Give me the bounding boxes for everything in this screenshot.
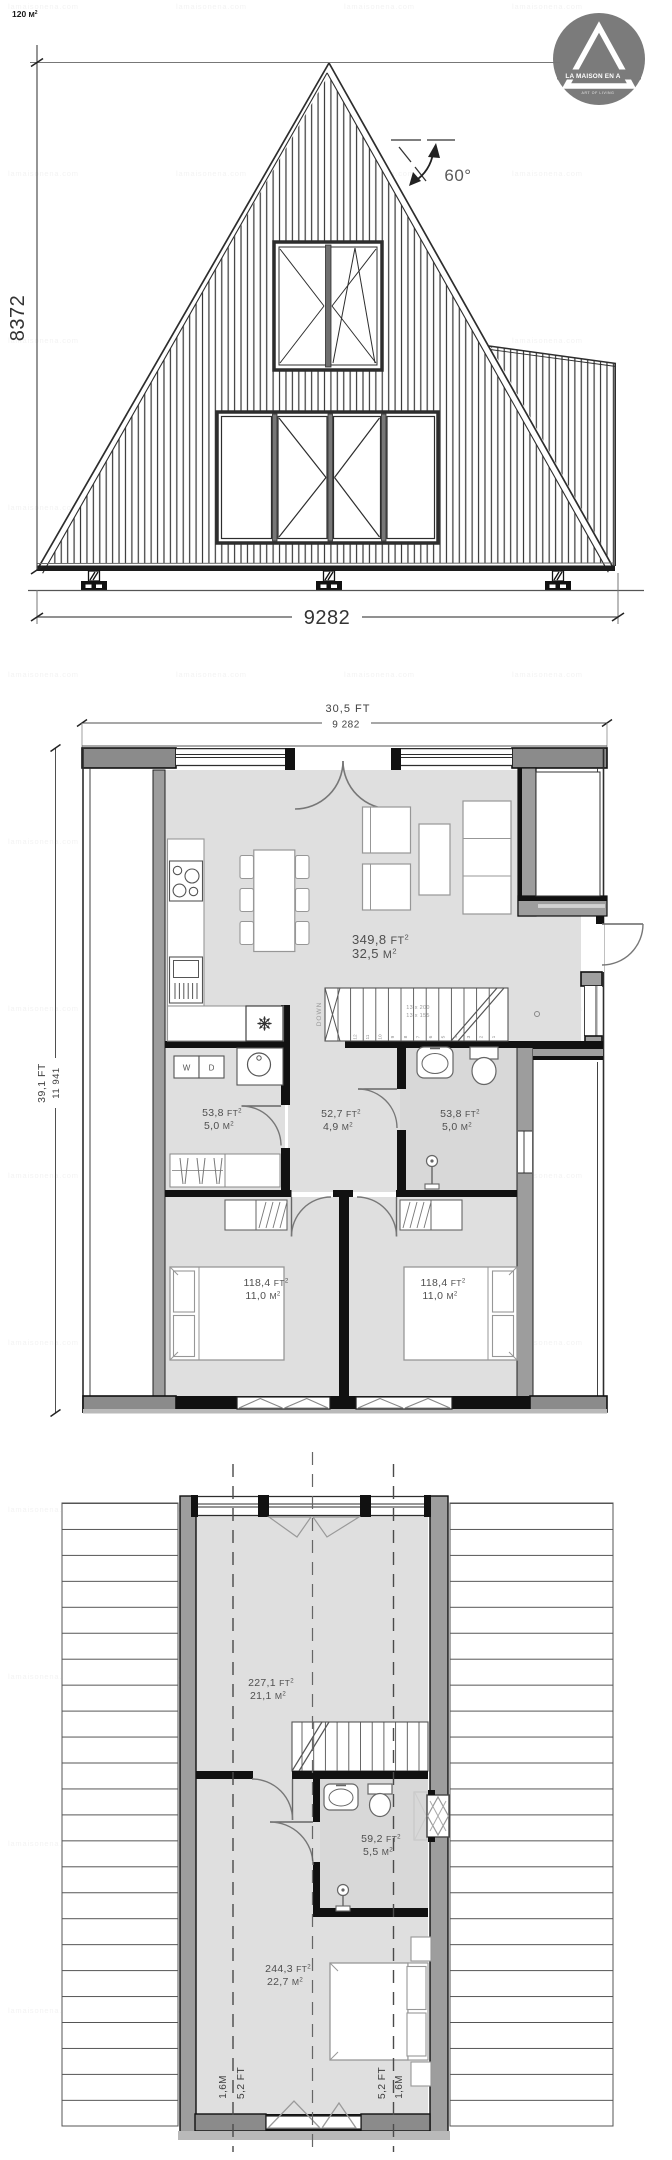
svg-text:118,4 FT2: 118,4 FT2 [243,1277,288,1289]
svg-text:120 M2: 120 M2 [12,9,38,19]
svg-text:lamaisonena.com: lamaisonena.com [512,670,583,679]
svg-text:ART OF LIVING: ART OF LIVING [582,91,615,95]
svg-text:D: D [209,1064,215,1073]
svg-text:118,4 FT2: 118,4 FT2 [420,1277,465,1289]
svg-text:39,1 FT: 39,1 FT [36,1063,48,1103]
svg-text:7: 7 [415,1035,421,1038]
svg-text:52,7 FT2: 52,7 FT2 [321,1108,361,1120]
svg-text:9282: 9282 [304,607,351,629]
svg-text:32,5 M2: 32,5 M2 [352,946,397,961]
svg-text:lamaisonena.com: lamaisonena.com [8,169,79,178]
svg-text:lamaisonena.com: lamaisonena.com [8,670,79,679]
svg-text:21,1 M2: 21,1 M2 [250,1690,286,1702]
svg-text:227,1 FT2: 227,1 FT2 [248,1677,294,1689]
svg-text:11,0 M2: 11,0 M2 [245,1290,281,1302]
svg-text:244,3 FT2: 244,3 FT2 [265,1963,311,1975]
svg-text:lamaisonena.com: lamaisonena.com [512,336,583,345]
svg-text:1,6M: 1,6M [218,2075,229,2098]
svg-text:5,2 FT: 5,2 FT [235,2067,247,2099]
svg-text:2: 2 [478,1035,484,1038]
svg-text:5,0 M2: 5,0 M2 [204,1120,234,1132]
svg-text:9 282: 9 282 [332,720,360,731]
svg-text:11,0 M2: 11,0 M2 [422,1290,458,1302]
svg-text:13 x 155: 13 x 155 [406,1013,430,1019]
svg-text:1: 1 [491,1035,497,1038]
svg-text:4,9 M2: 4,9 M2 [323,1121,353,1133]
svg-text:60°: 60° [444,166,471,185]
svg-text:LA MAISON EN A: LA MAISON EN A [565,73,620,80]
svg-text:W: W [183,1064,191,1073]
svg-text:lamaisonena.com: lamaisonena.com [8,1004,79,1013]
svg-text:12: 12 [352,1034,358,1040]
svg-text:59,2 FT2: 59,2 FT2 [361,1833,401,1845]
svg-text:5: 5 [441,1035,447,1038]
svg-text:9: 9 [390,1035,396,1038]
svg-text:DOWN: DOWN [316,1002,323,1027]
svg-text:5,5 M2: 5,5 M2 [363,1846,393,1858]
svg-text:lamaisonena.com: lamaisonena.com [176,2,247,11]
svg-text:22,7 M2: 22,7 M2 [267,1976,303,1988]
svg-text:lamaisonena.com: lamaisonena.com [344,670,415,679]
svg-text:13 x 200: 13 x 200 [406,1005,430,1011]
svg-text:5,0 M2: 5,0 M2 [442,1121,472,1133]
svg-text:lamaisonena.com: lamaisonena.com [8,1171,79,1180]
svg-text:11: 11 [365,1034,371,1039]
svg-text:10: 10 [378,1034,384,1040]
svg-text:lamaisonena.com: lamaisonena.com [512,169,583,178]
svg-text:5,2 FT: 5,2 FT [376,2067,388,2099]
svg-text:4: 4 [453,1035,459,1038]
svg-text:53,8 FT2: 53,8 FT2 [202,1107,242,1119]
svg-text:lamaisonena.com: lamaisonena.com [176,169,247,178]
svg-text:30,5 FT: 30,5 FT [326,703,371,715]
svg-text:lamaisonena.com: lamaisonena.com [8,503,79,512]
svg-text:3: 3 [466,1035,472,1038]
svg-text:lamaisonena.com: lamaisonena.com [176,670,247,679]
svg-text:lamaisonena.com: lamaisonena.com [8,1338,79,1347]
svg-text:8: 8 [403,1035,409,1038]
svg-text:1,6M: 1,6M [394,2075,405,2098]
svg-text:lamaisonena.com: lamaisonena.com [8,837,79,846]
svg-text:8372: 8372 [7,295,29,342]
svg-text:11 941: 11 941 [51,1067,62,1098]
svg-text:lamaisonena.com: lamaisonena.com [344,2,415,11]
svg-text:6: 6 [428,1035,434,1038]
svg-text:53,8 FT2: 53,8 FT2 [440,1108,480,1120]
svg-text:lamaisonena.com: lamaisonena.com [512,2,583,11]
svg-text:349,8 FT2: 349,8 FT2 [352,932,409,947]
